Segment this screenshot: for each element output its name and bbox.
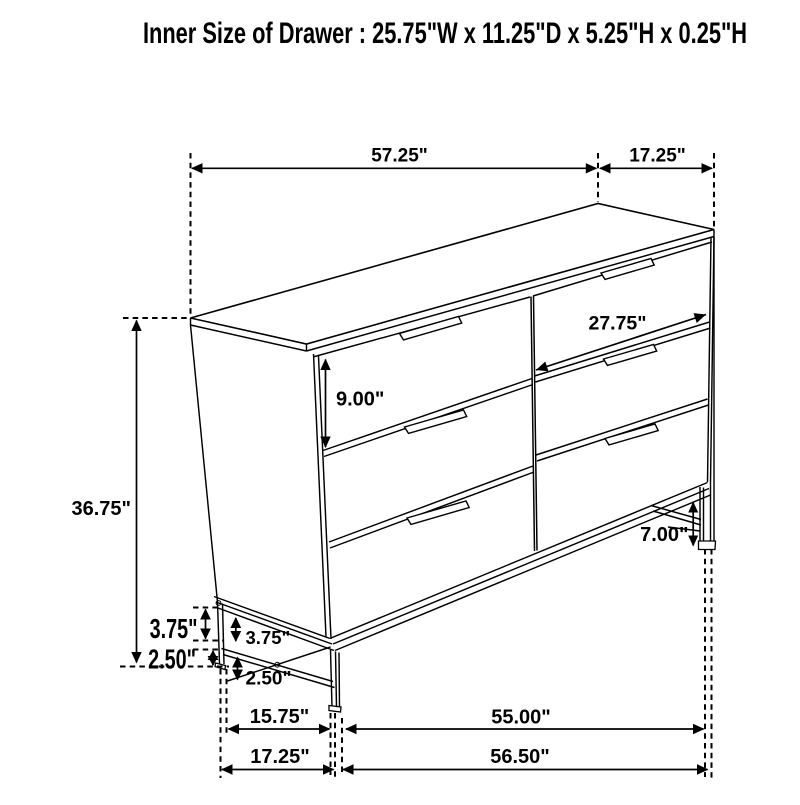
- svg-text:55.00": 55.00": [491, 707, 551, 729]
- svg-text:Inner Size of Drawer : 25.75"W: Inner Size of Drawer : 25.75"W x 11.25"D…: [143, 18, 747, 50]
- svg-text:27.75": 27.75": [588, 313, 646, 335]
- svg-text:17.25": 17.25": [250, 746, 310, 768]
- svg-text:17.25": 17.25": [629, 146, 686, 167]
- svg-text:3.75": 3.75": [150, 614, 198, 645]
- svg-text:2.50": 2.50": [246, 669, 292, 690]
- svg-text:15.75": 15.75": [250, 706, 310, 728]
- svg-text:3.75": 3.75": [246, 627, 291, 648]
- svg-text:7.00": 7.00": [640, 524, 688, 546]
- svg-text:2.50": 2.50": [148, 644, 196, 675]
- svg-text:36.75": 36.75": [71, 498, 131, 520]
- svg-text:56.50": 56.50": [490, 746, 550, 768]
- svg-text:9.00": 9.00": [336, 389, 384, 411]
- svg-text:57.25": 57.25": [371, 146, 428, 167]
